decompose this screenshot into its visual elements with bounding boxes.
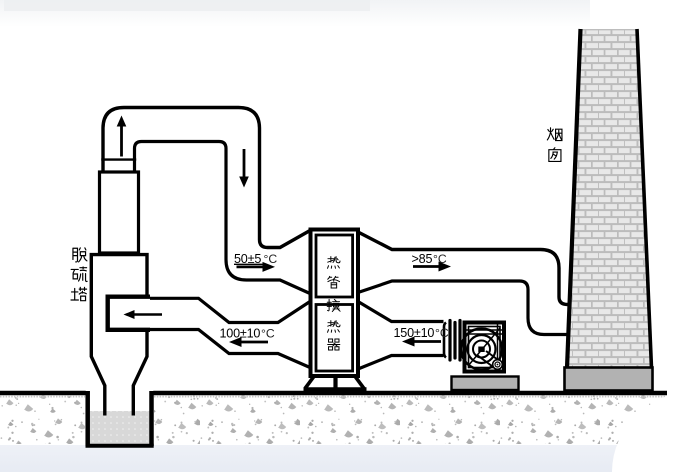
svg-text:°C: °C (435, 326, 449, 340)
svg-text:>85: >85 (412, 252, 433, 266)
svg-text:°C: °C (261, 326, 275, 340)
